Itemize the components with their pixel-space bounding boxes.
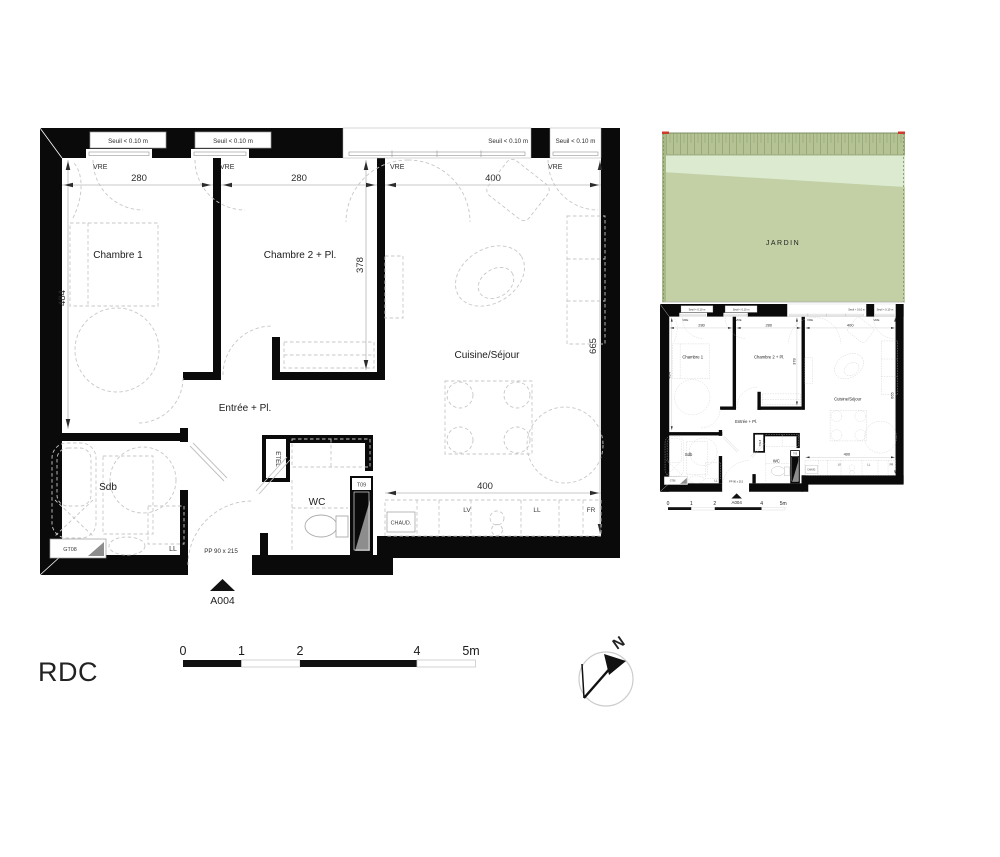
garden-left-edge	[662, 133, 666, 302]
garden-label: JARDIN	[766, 240, 800, 247]
floor-label: RDC	[38, 657, 98, 687]
garden-hedge-band	[662, 133, 905, 155]
main-scale-bar	[180, 644, 480, 667]
main-floor-plan	[40, 128, 620, 607]
mini-scale-bar	[667, 501, 787, 510]
mini-floor-plan	[660, 304, 904, 505]
garden-area	[662, 172, 905, 302]
survey-mark-left	[662, 132, 669, 135]
survey-mark-right	[898, 132, 905, 135]
floor-plan-canvas: Seuil < 0.10 m Seuil < 0.10 m Seuil < 0.…	[0, 0, 1000, 857]
garden-site-plan: JARDIN	[662, 132, 905, 303]
north-arrow: N	[579, 633, 633, 706]
north-label: N	[610, 633, 629, 653]
